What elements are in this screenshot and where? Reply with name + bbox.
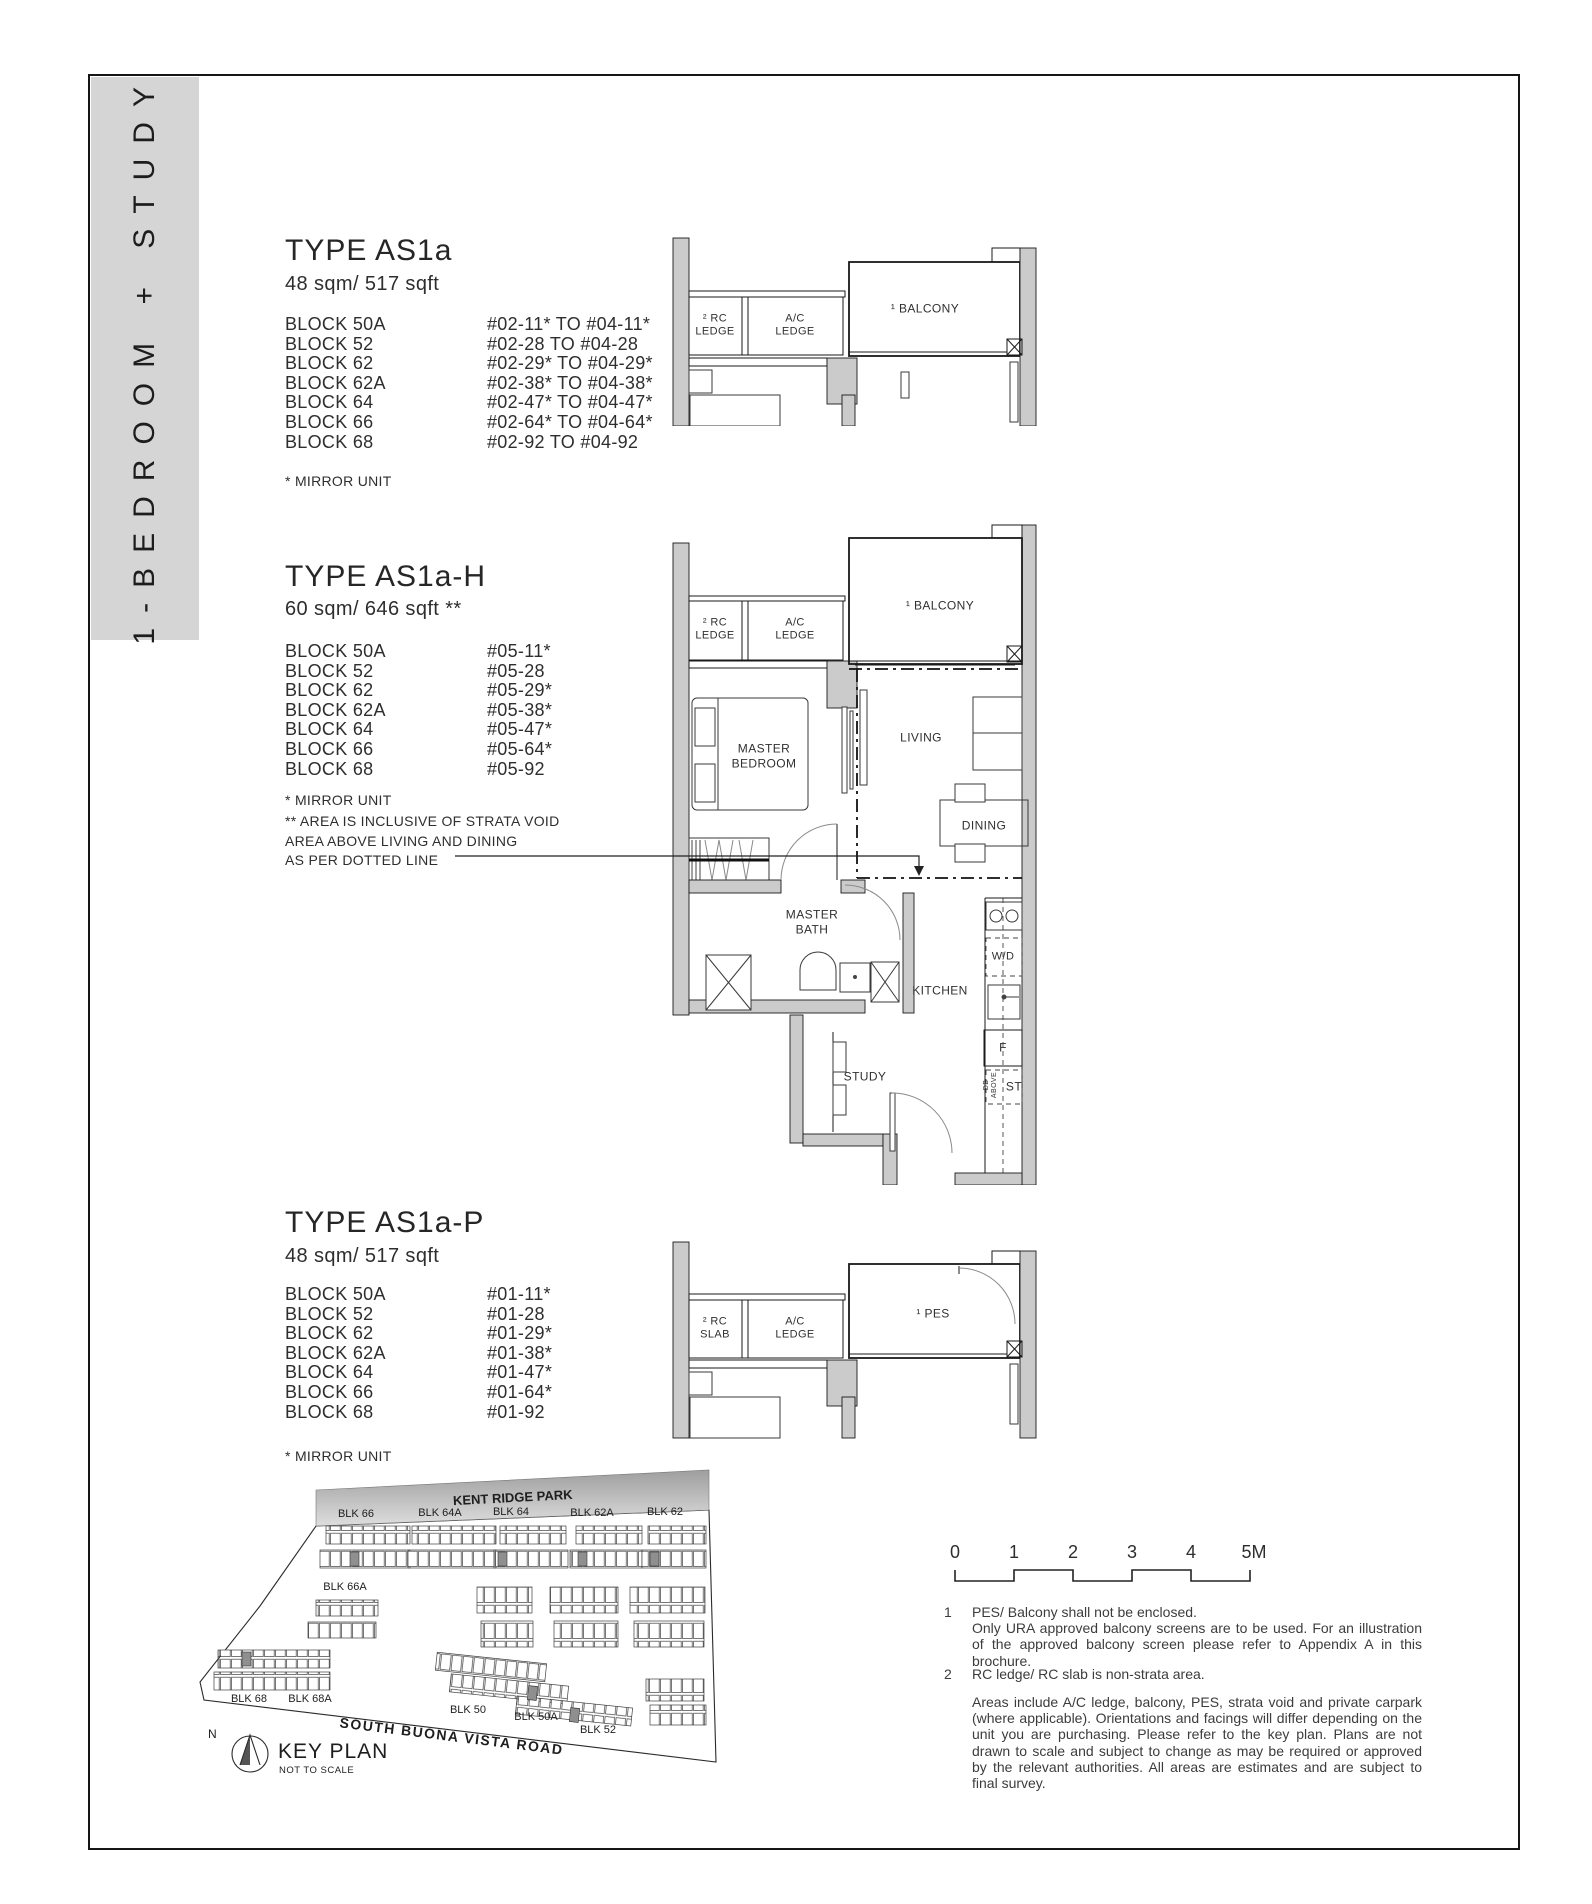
rc-ledge-label: ² RC LEDGE — [695, 313, 734, 340]
rc-ledge-label: ² RC LEDGE — [695, 617, 734, 644]
key-plan-subtitle: NOT TO SCALE — [279, 1765, 354, 1776]
blk-66-label: BLK 66 — [338, 1508, 374, 1520]
key-plan-title: KEY PLAN — [278, 1740, 388, 1763]
blk-64a-label: BLK 64A — [418, 1507, 462, 1519]
blk-68-label: BLK 68 — [231, 1693, 267, 1705]
block-units: #05-47* — [487, 720, 552, 740]
block-label: BLOCK 64 — [285, 1363, 487, 1383]
footnote-general: Areas include A/C ledge, balcony, PES, s… — [972, 1694, 1422, 1791]
block-units: #01-92 — [487, 1403, 552, 1423]
block-label: BLOCK 68 — [285, 1403, 487, 1423]
block-label: BLOCK 52 — [285, 1305, 487, 1325]
block-label: BLOCK 64 — [285, 720, 487, 740]
mirror-unit-note: * MIRROR UNIT — [285, 791, 392, 811]
page-title: 1-BEDROOM + STUDY — [128, 72, 162, 645]
block-label: BLOCK 50A — [285, 642, 487, 662]
block-units: #01-47* — [487, 1363, 552, 1383]
scale-bar-ruler — [952, 1566, 1258, 1586]
footnote-number: 2 — [944, 1666, 972, 1682]
block-label: BLOCK 62A — [285, 701, 487, 721]
sidebar-band: 1-BEDROOM + STUDY — [91, 77, 199, 640]
pes-label: ¹ PES — [916, 1307, 949, 1322]
block-units: #01-28 — [487, 1305, 552, 1325]
block-units: #01-64* — [487, 1383, 552, 1403]
block-label: BLOCK 52 — [285, 662, 487, 682]
type-as1a-area: 48 sqm/ 517 sqft — [285, 273, 439, 296]
db-above-label: DB ABOVE — [983, 1072, 999, 1098]
floorplan-as1a — [555, 186, 1065, 426]
footnote-number: 1 — [944, 1604, 972, 1669]
scale-tick: 3 — [1127, 1542, 1137, 1563]
block-units: #05-29* — [487, 681, 552, 701]
brochure-page: 1-BEDROOM + STUDY TYPE AS1a 48 sqm/ 517 … — [0, 0, 1592, 1904]
kitchen-label: KITCHEN — [912, 984, 967, 999]
block-label: BLOCK 62 — [285, 1324, 487, 1344]
block-units: #05-38* — [487, 701, 552, 721]
scale-tick: 0 — [950, 1542, 960, 1563]
blk-62a-label: BLK 62A — [570, 1507, 614, 1519]
block-label: BLOCK 66 — [285, 1383, 487, 1403]
master-bedroom-label: MASTER BEDROOM — [732, 741, 797, 770]
study-label: STUDY — [844, 1070, 887, 1085]
block-label: BLOCK 68 — [285, 760, 487, 780]
blk-62-label: BLK 62 — [647, 1506, 683, 1518]
block-label: BLOCK 68 — [285, 433, 487, 453]
block-units: #01-29* — [487, 1324, 552, 1344]
blk-50-label: BLK 50 — [450, 1704, 486, 1716]
type-as1ap-area: 48 sqm/ 517 sqft — [285, 1245, 439, 1268]
scale-tick: 2 — [1068, 1542, 1078, 1563]
mirror-unit-note: * MIRROR UNIT — [285, 472, 392, 492]
balcony-label: ¹ BALCONY — [891, 302, 959, 317]
wd-label: W/D — [992, 950, 1015, 963]
scale-tick: 4 — [1186, 1542, 1196, 1563]
block-units: #01-11* — [487, 1285, 552, 1305]
block-label: BLOCK 66 — [285, 413, 487, 433]
footnote-text: PES/ Balcony shall not be enclosed. Only… — [972, 1604, 1422, 1669]
footnote-2: 2 RC ledge/ RC slab is non-strata area. — [944, 1666, 1422, 1682]
balcony-label: ¹ BALCONY — [906, 599, 974, 614]
north-label: N — [208, 1727, 217, 1741]
type-as1ap-block-table: BLOCK 50A#01-11* BLOCK 52#01-28 BLOCK 62… — [285, 1285, 552, 1422]
block-label: BLOCK 50A — [285, 315, 487, 335]
master-bath-label: MASTER BATH — [786, 907, 838, 936]
block-label: BLOCK 50A — [285, 1285, 487, 1305]
store-label: ST — [1006, 1080, 1022, 1095]
type-as1ah-block-table: BLOCK 50A#05-11* BLOCK 52#05-28 BLOCK 62… — [285, 642, 552, 779]
footnote-text: RC ledge/ RC slab is non-strata area. — [972, 1666, 1422, 1682]
block-units: #05-11* — [487, 642, 552, 662]
block-units: #05-92 — [487, 760, 552, 780]
footnote-1: 1 PES/ Balcony shall not be enclosed. On… — [944, 1604, 1422, 1669]
block-label: BLOCK 66 — [285, 740, 487, 760]
scale-tick: 1 — [1009, 1542, 1019, 1563]
dining-label: DINING — [962, 819, 1006, 834]
ac-ledge-label: A/C LEDGE — [775, 1316, 814, 1343]
block-label: BLOCK 62 — [285, 354, 487, 374]
block-units: #01-38* — [487, 1344, 552, 1364]
block-label: BLOCK 64 — [285, 393, 487, 413]
blk-52-label: BLK 52 — [580, 1724, 616, 1736]
block-label: BLOCK 62A — [285, 374, 487, 394]
block-units: #05-64* — [487, 740, 552, 760]
block-label: BLOCK 62 — [285, 681, 487, 701]
blk-50a-label: BLK 50A — [514, 1711, 558, 1723]
type-as1a-title: TYPE AS1a — [285, 234, 452, 268]
fridge-label: F — [999, 1041, 1007, 1056]
blk-68a-label: BLK 68A — [288, 1693, 332, 1705]
block-label: BLOCK 62A — [285, 1344, 487, 1364]
blk-64-label: BLK 64 — [493, 1506, 529, 1518]
rc-slab-label: ² RC SLAB — [700, 1316, 730, 1343]
scale-tick: 5M — [1241, 1542, 1266, 1563]
blk-66a-label: BLK 66A — [323, 1581, 367, 1593]
type-as1ah-title: TYPE AS1a-H — [285, 560, 486, 594]
block-label: BLOCK 52 — [285, 335, 487, 355]
living-label: LIVING — [900, 731, 942, 746]
ac-ledge-label: A/C LEDGE — [775, 617, 814, 644]
block-units: #05-28 — [487, 662, 552, 682]
dotted-line-leader — [453, 850, 927, 880]
ac-ledge-label: A/C LEDGE — [775, 313, 814, 340]
type-as1ah-area: 60 sqm/ 646 sqft ** — [285, 598, 462, 621]
type-as1ap-title: TYPE AS1a-P — [285, 1206, 484, 1240]
key-plan: KENT RIDGE PARK BLK 66 BLK 64A BLK 64 BL… — [198, 1460, 738, 1805]
